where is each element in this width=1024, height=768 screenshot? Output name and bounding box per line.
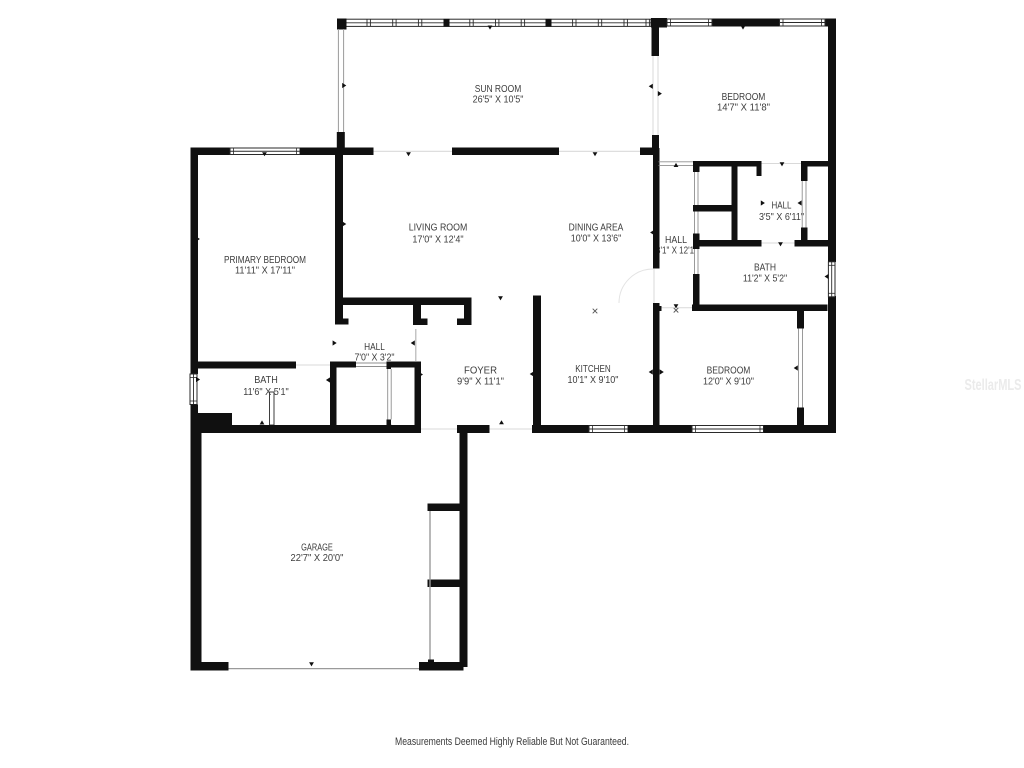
svg-text:BATH: BATH	[754, 262, 776, 273]
svg-text:9'9" X 11'1": 9'9" X 11'1"	[457, 377, 504, 388]
svg-text:14'7" X 11'8": 14'7" X 11'8"	[717, 102, 770, 113]
svg-text:11'2" X 5'2": 11'2" X 5'2"	[743, 274, 788, 285]
svg-text:HALL: HALL	[364, 342, 385, 353]
svg-text:3'1" X 12'1": 3'1" X 12'1"	[656, 246, 697, 257]
svg-text:10'0" X 13'6": 10'0" X 13'6"	[571, 234, 622, 245]
svg-text:FOYER: FOYER	[464, 365, 497, 376]
svg-text:BEDROOM: BEDROOM	[707, 365, 751, 376]
svg-text:BEDROOM: BEDROOM	[722, 92, 766, 103]
svg-text:KITCHEN: KITCHEN	[575, 364, 610, 375]
svg-text:11'11" X 17'11": 11'11" X 17'11"	[235, 265, 295, 276]
svg-text:22'7" X 20'0": 22'7" X 20'0"	[291, 553, 344, 564]
svg-text:BATH: BATH	[254, 375, 278, 386]
svg-text:12'0" X 9'10": 12'0" X 9'10"	[703, 377, 754, 388]
svg-text:Measurements Deemed Highly Rel: Measurements Deemed Highly Reliable But …	[395, 736, 629, 748]
svg-text:26'5" X 10'5": 26'5" X 10'5"	[473, 94, 524, 105]
svg-text:DINING AREA: DINING AREA	[569, 223, 624, 234]
svg-text:17'0" X 12'4": 17'0" X 12'4"	[412, 235, 464, 246]
svg-text:7'0" X 3'2": 7'0" X 3'2"	[354, 352, 394, 363]
svg-text:HALL: HALL	[772, 201, 792, 212]
svg-text:GARAGE: GARAGE	[301, 542, 333, 553]
svg-text:3'5" X 6'11": 3'5" X 6'11"	[759, 212, 804, 223]
svg-text:LIVING ROOM: LIVING ROOM	[409, 223, 468, 234]
svg-text:HALL: HALL	[665, 235, 687, 246]
svg-text:11'6" X 5'1": 11'6" X 5'1"	[243, 387, 289, 398]
svg-text:10'1" X 9'10": 10'1" X 9'10"	[568, 375, 619, 386]
svg-text:StellarMLS: StellarMLS	[965, 377, 1022, 394]
